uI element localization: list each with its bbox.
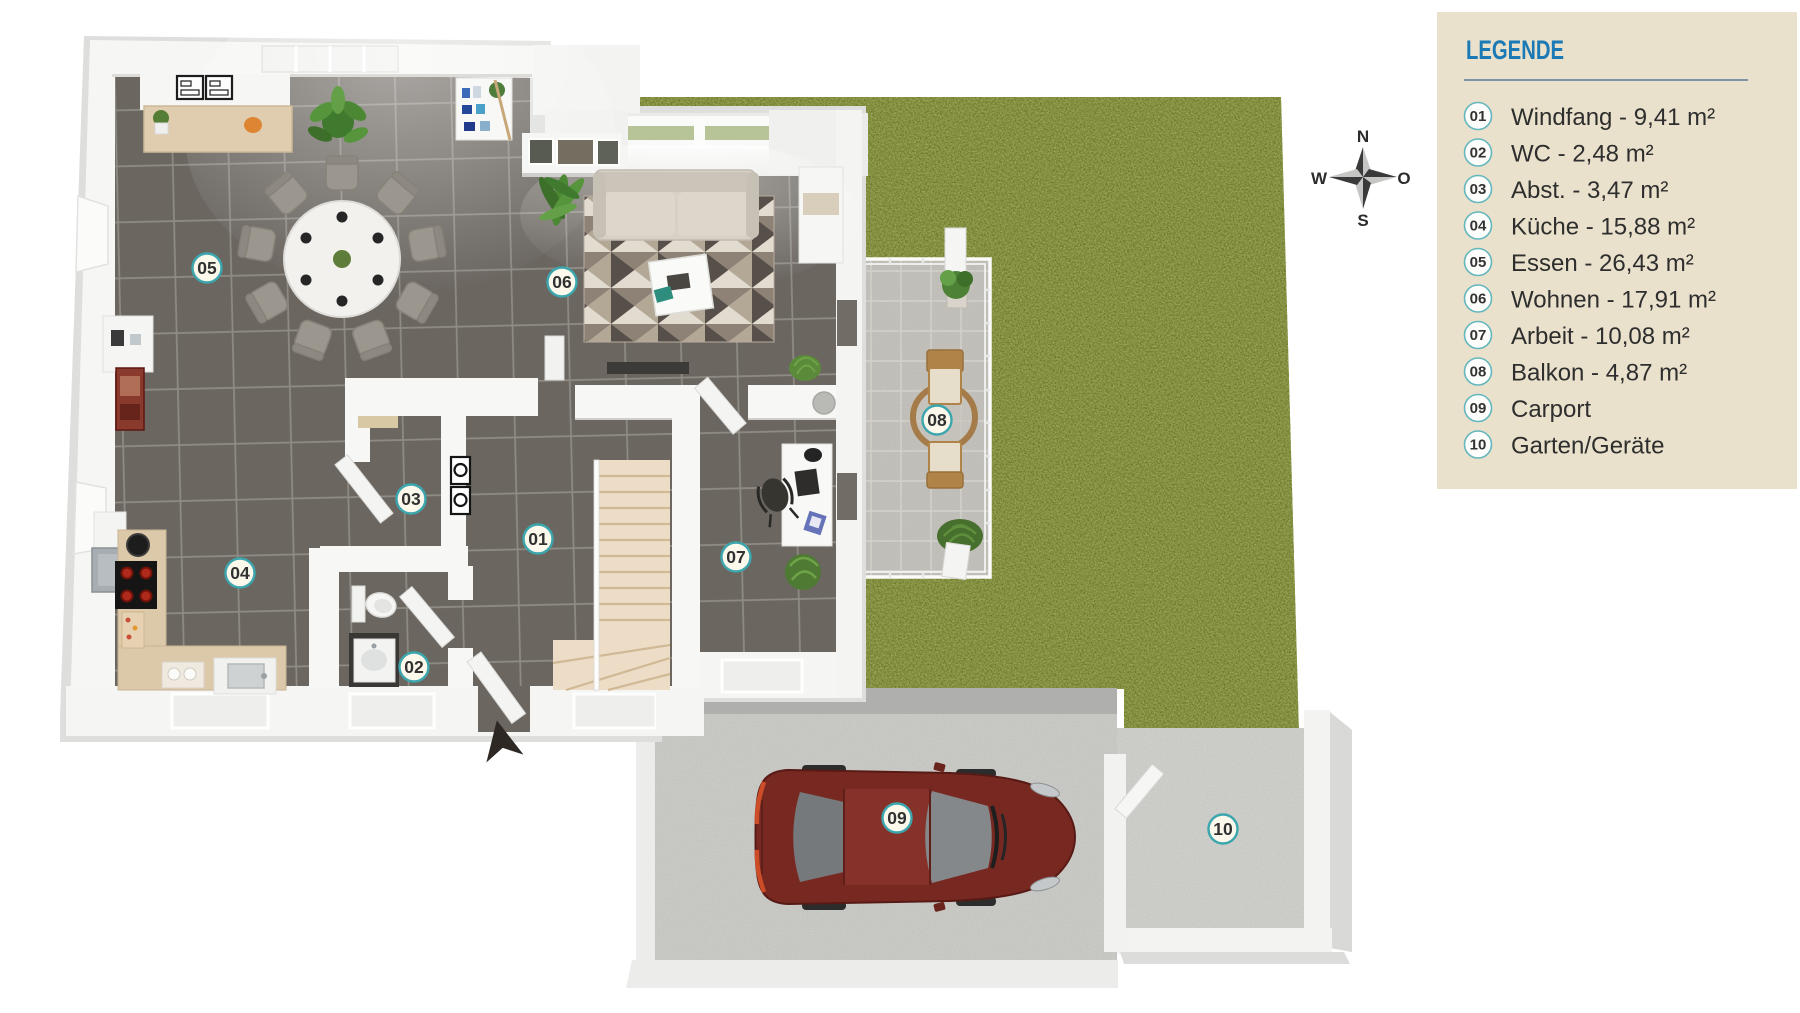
svg-text:09: 09: [1470, 400, 1487, 417]
svg-text:07: 07: [726, 547, 745, 567]
svg-text:05: 05: [1470, 254, 1487, 271]
svg-text:01: 01: [1470, 108, 1487, 125]
svg-text:S: S: [1357, 211, 1368, 230]
svg-text:02: 02: [404, 657, 424, 677]
svg-text:01: 01: [528, 529, 548, 549]
svg-text:10: 10: [1470, 437, 1487, 454]
svg-text:Balkon - 4,87 m²: Balkon - 4,87 m²: [1511, 360, 1687, 387]
svg-text:03: 03: [1470, 181, 1487, 198]
svg-text:04: 04: [230, 563, 250, 583]
svg-text:10: 10: [1213, 819, 1233, 839]
svg-text:09: 09: [887, 808, 907, 828]
svg-text:Abst. - 3,47 m²: Abst. - 3,47 m²: [1511, 177, 1668, 204]
svg-text:Wohnen - 17,91 m²: Wohnen - 17,91 m²: [1511, 287, 1716, 314]
svg-text:Garten/Geräte: Garten/Geräte: [1511, 433, 1664, 460]
svg-text:06: 06: [1470, 291, 1487, 308]
svg-text:05: 05: [197, 258, 217, 278]
svg-text:08: 08: [927, 410, 947, 430]
svg-text:WC - 2,48 m²: WC - 2,48 m²: [1511, 141, 1654, 168]
svg-text:07: 07: [1470, 327, 1487, 344]
svg-text:Essen - 26,43 m²: Essen - 26,43 m²: [1511, 250, 1694, 277]
svg-text:LEGENDE: LEGENDE: [1466, 35, 1564, 65]
svg-text:Windfang - 9,41 m²: Windfang - 9,41 m²: [1511, 104, 1715, 131]
svg-text:02: 02: [1470, 145, 1487, 162]
svg-text:08: 08: [1470, 364, 1487, 381]
svg-text:Arbeit - 10,08 m²: Arbeit - 10,08 m²: [1511, 323, 1690, 350]
svg-text:O: O: [1397, 169, 1410, 188]
svg-text:W: W: [1311, 169, 1328, 188]
svg-text:Küche - 15,88 m²: Küche - 15,88 m²: [1511, 214, 1695, 241]
svg-text:Carport: Carport: [1511, 396, 1591, 423]
svg-text:06: 06: [552, 272, 572, 292]
svg-text:N: N: [1357, 127, 1369, 146]
svg-text:04: 04: [1470, 218, 1487, 235]
svg-text:03: 03: [401, 489, 421, 509]
